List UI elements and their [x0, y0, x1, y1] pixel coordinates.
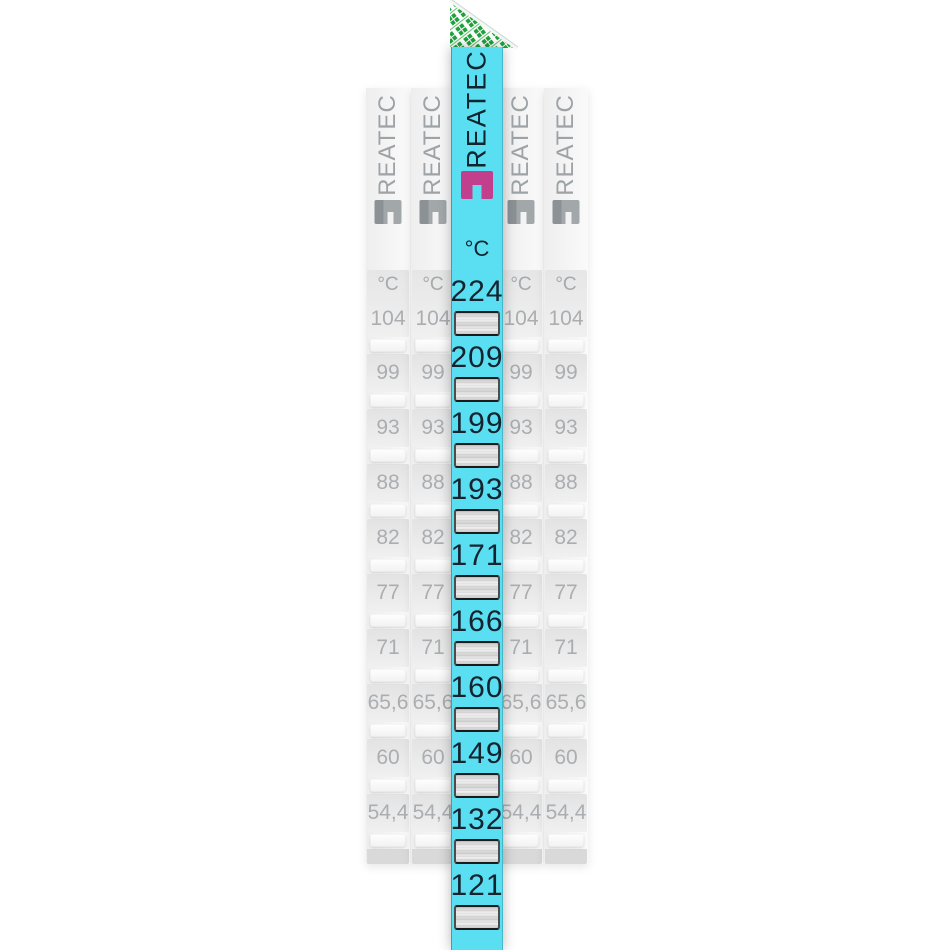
indicator-slot	[503, 669, 539, 682]
temp-value: 93	[367, 409, 409, 447]
temp-value: 71	[545, 629, 587, 667]
indicator-slot-row	[499, 722, 543, 739]
temp-value: 82	[367, 519, 409, 557]
indicator-slot-row	[499, 832, 543, 849]
temp-value: 121	[452, 866, 502, 905]
brand-logo-icon	[461, 171, 493, 199]
indicator-window	[454, 377, 500, 402]
indicator-slot	[548, 559, 584, 572]
indicator-slot-row	[366, 447, 410, 464]
indicator-slot	[415, 339, 451, 352]
indicator-slot	[503, 724, 539, 737]
brand-logo-icon	[553, 200, 580, 224]
indicator-slot	[503, 394, 539, 407]
indicator-slot	[548, 669, 584, 682]
liner-flap	[448, 0, 518, 49]
indicator-slot-row	[366, 832, 410, 849]
brand-text: REATEC	[552, 94, 580, 196]
unit-label: °C	[500, 270, 542, 300]
strip-header: REATEC	[499, 88, 543, 270]
unit-label: °C	[452, 235, 502, 263]
temp-value: 132	[452, 800, 502, 839]
indicator-window	[454, 311, 500, 336]
indicator-slot-row	[411, 722, 455, 739]
indicator-slot	[415, 669, 451, 682]
indicator-slot	[548, 779, 584, 792]
temp-value: 54,4	[545, 794, 587, 832]
temp-cell: 209	[452, 338, 502, 404]
temp-value: 166	[452, 602, 502, 641]
scale-band: °C 104	[412, 270, 454, 337]
indicator-slot	[415, 834, 451, 847]
indicator-slot-row	[366, 502, 410, 519]
indicator-slot-row	[366, 392, 410, 409]
brand-text: REATEC	[374, 94, 402, 196]
temp-value: 77	[545, 574, 587, 612]
temp-value: 224	[452, 272, 502, 311]
temp-value: 160	[452, 668, 502, 707]
indicator-slot	[415, 394, 451, 407]
temp-value: 209	[452, 338, 502, 377]
scale-band: °C 104	[500, 270, 542, 337]
indicator-slot	[503, 559, 539, 572]
temp-cell: 193	[452, 470, 502, 536]
indicator-slot-row	[366, 337, 410, 354]
temp-cell: 132	[452, 800, 502, 866]
indicator-slot	[548, 614, 584, 627]
indicator-slot-row	[544, 392, 588, 409]
temp-value: 93	[500, 409, 542, 447]
indicator-slot-row	[411, 502, 455, 519]
strip-bottom-edge	[500, 849, 542, 864]
indicator-slot-row	[366, 557, 410, 574]
temp-value: 77	[367, 574, 409, 612]
temp-cell: 149	[452, 734, 502, 800]
temp-value: 77	[500, 574, 542, 612]
brand-text: REATEC	[507, 94, 535, 196]
indicator-slot-row	[544, 502, 588, 519]
temp-value: 60	[412, 739, 454, 777]
indicator-window	[454, 641, 500, 666]
indicator-window	[454, 443, 500, 468]
temp-value: 88	[367, 464, 409, 502]
indicator-slot	[503, 339, 539, 352]
indicator-slot	[370, 339, 406, 352]
strip-bottom-edge	[367, 849, 409, 864]
indicator-slot-row	[499, 667, 543, 684]
brand-text: REATEC	[462, 49, 493, 169]
indicator-slot-row	[499, 447, 543, 464]
temp-value: 104	[367, 300, 409, 337]
indicator-slot-row	[499, 557, 543, 574]
indicator-slot-row	[544, 612, 588, 629]
indicator-slot	[370, 724, 406, 737]
indicator-window	[454, 839, 500, 864]
featured-strip: REATEC °C 224 209 199 193	[451, 0, 503, 950]
background-strip-1: REATEC °C 104 99 93 88 82 77 71 65,6 60	[366, 88, 410, 864]
temp-value: 82	[412, 519, 454, 557]
indicator-slot	[370, 779, 406, 792]
temp-cell: 166	[452, 602, 502, 668]
background-strip-2: REATEC °C 104 99 93 88 82 77 71 65,6 60	[411, 88, 455, 864]
product-photo-temperature-strips: REATEC °C 224 209 199 193	[0, 0, 950, 950]
indicator-slot	[503, 504, 539, 517]
strip-header: REATEC	[366, 88, 410, 270]
indicator-window	[454, 905, 500, 930]
indicator-slot	[503, 779, 539, 792]
indicator-slot	[415, 504, 451, 517]
indicator-slot	[548, 834, 584, 847]
temp-value: 65,6	[545, 684, 587, 722]
temp-cell: 224	[452, 272, 502, 338]
indicator-slot	[415, 614, 451, 627]
background-strip-3: REATEC °C 104 99 93 88 82 77 71 65,6 60	[499, 88, 543, 864]
indicator-slot-row	[499, 392, 543, 409]
liner-pattern-icon	[448, 0, 518, 49]
unit-label: °C	[545, 270, 587, 300]
unit-label: °C	[367, 270, 409, 300]
temp-value: 65,6	[500, 684, 542, 722]
temp-cell: 171	[452, 536, 502, 602]
indicator-window	[454, 773, 500, 798]
temp-cell: 160	[452, 668, 502, 734]
indicator-slot-row	[544, 447, 588, 464]
strip-header: REATEC	[411, 88, 455, 270]
background-strip-4: REATEC °C 104 99 93 88 82 77 71 65,6 60	[544, 88, 588, 864]
strip-bottom-edge	[545, 849, 587, 864]
indicator-slot	[370, 834, 406, 847]
brand-logo-icon	[375, 200, 402, 224]
brand-logo-icon	[508, 200, 535, 224]
indicator-slot	[548, 449, 584, 462]
indicator-window	[454, 575, 500, 600]
temp-cells: 224 209 199 193 171	[452, 272, 502, 932]
indicator-slot-row	[366, 667, 410, 684]
featured-strip-body: REATEC °C 224 209 199 193	[451, 47, 503, 950]
temp-value: 199	[452, 404, 502, 443]
temp-value: 54,4	[412, 794, 454, 832]
indicator-slot-row	[411, 832, 455, 849]
indicator-slot	[548, 724, 584, 737]
temp-value: 71	[367, 629, 409, 667]
indicator-slot	[503, 449, 539, 462]
temp-value: 99	[500, 354, 542, 392]
indicator-slot	[370, 559, 406, 572]
indicator-slot-row	[411, 337, 455, 354]
scale-band: °C 104	[545, 270, 587, 337]
temp-value: 104	[545, 300, 587, 337]
indicator-slot	[415, 449, 451, 462]
indicator-slot	[548, 394, 584, 407]
indicator-slot-row	[499, 612, 543, 629]
temp-value: 88	[545, 464, 587, 502]
temp-cell: 199	[452, 404, 502, 470]
indicator-slot	[370, 504, 406, 517]
temp-value: 60	[367, 739, 409, 777]
temp-value: 54,4	[500, 794, 542, 832]
indicator-slot	[370, 394, 406, 407]
indicator-slot	[548, 504, 584, 517]
indicator-slot-row	[544, 557, 588, 574]
temp-value: 93	[545, 409, 587, 447]
indicator-slot	[415, 779, 451, 792]
temp-value: 99	[545, 354, 587, 392]
indicator-slot-row	[411, 667, 455, 684]
brand-logo-icon	[420, 200, 447, 224]
temp-value: 99	[367, 354, 409, 392]
temp-value: 82	[545, 519, 587, 557]
temp-value: 171	[452, 536, 502, 575]
temp-value: 104	[500, 300, 542, 337]
indicator-slot-row	[411, 777, 455, 794]
temp-value: 71	[500, 629, 542, 667]
temp-value: 60	[545, 739, 587, 777]
indicator-slot-row	[411, 557, 455, 574]
temp-value: 93	[412, 409, 454, 447]
brand-text: REATEC	[419, 94, 447, 196]
unit-label: °C	[412, 270, 454, 300]
temp-value: 88	[412, 464, 454, 502]
temp-value: 65,6	[367, 684, 409, 722]
indicator-slot-row	[544, 722, 588, 739]
indicator-slot-row	[366, 612, 410, 629]
indicator-slot-row	[499, 337, 543, 354]
temp-value: 77	[412, 574, 454, 612]
strip-bottom-edge	[412, 849, 454, 864]
indicator-slot	[415, 724, 451, 737]
temp-value: 104	[412, 300, 454, 337]
indicator-slot-row	[544, 667, 588, 684]
scale-band: °C 104	[367, 270, 409, 337]
indicator-slot-row	[544, 337, 588, 354]
temp-value: 60	[500, 739, 542, 777]
temp-value: 54,4	[367, 794, 409, 832]
temp-cell: 121	[452, 866, 502, 932]
indicator-slot	[415, 559, 451, 572]
temp-value: 65,6	[412, 684, 454, 722]
indicator-slot	[370, 669, 406, 682]
indicator-slot-row	[411, 447, 455, 464]
indicator-slot-row	[544, 777, 588, 794]
temp-value: 71	[412, 629, 454, 667]
strip-header: REATEC	[544, 88, 588, 270]
temp-value: 193	[452, 470, 502, 509]
indicator-slot-row	[499, 502, 543, 519]
temp-value: 88	[500, 464, 542, 502]
indicator-slot	[370, 449, 406, 462]
indicator-slot	[548, 339, 584, 352]
temp-value: 99	[412, 354, 454, 392]
indicator-slot-row	[411, 392, 455, 409]
temp-value: 82	[500, 519, 542, 557]
indicator-slot-row	[366, 722, 410, 739]
indicator-slot-row	[544, 832, 588, 849]
indicator-slot	[503, 614, 539, 627]
indicator-slot	[370, 614, 406, 627]
temp-value: 149	[452, 734, 502, 773]
indicator-slot-row	[499, 777, 543, 794]
indicator-slot-row	[366, 777, 410, 794]
indicator-window	[454, 707, 500, 732]
indicator-slot-row	[411, 612, 455, 629]
indicator-slot	[503, 834, 539, 847]
indicator-window	[454, 509, 500, 534]
